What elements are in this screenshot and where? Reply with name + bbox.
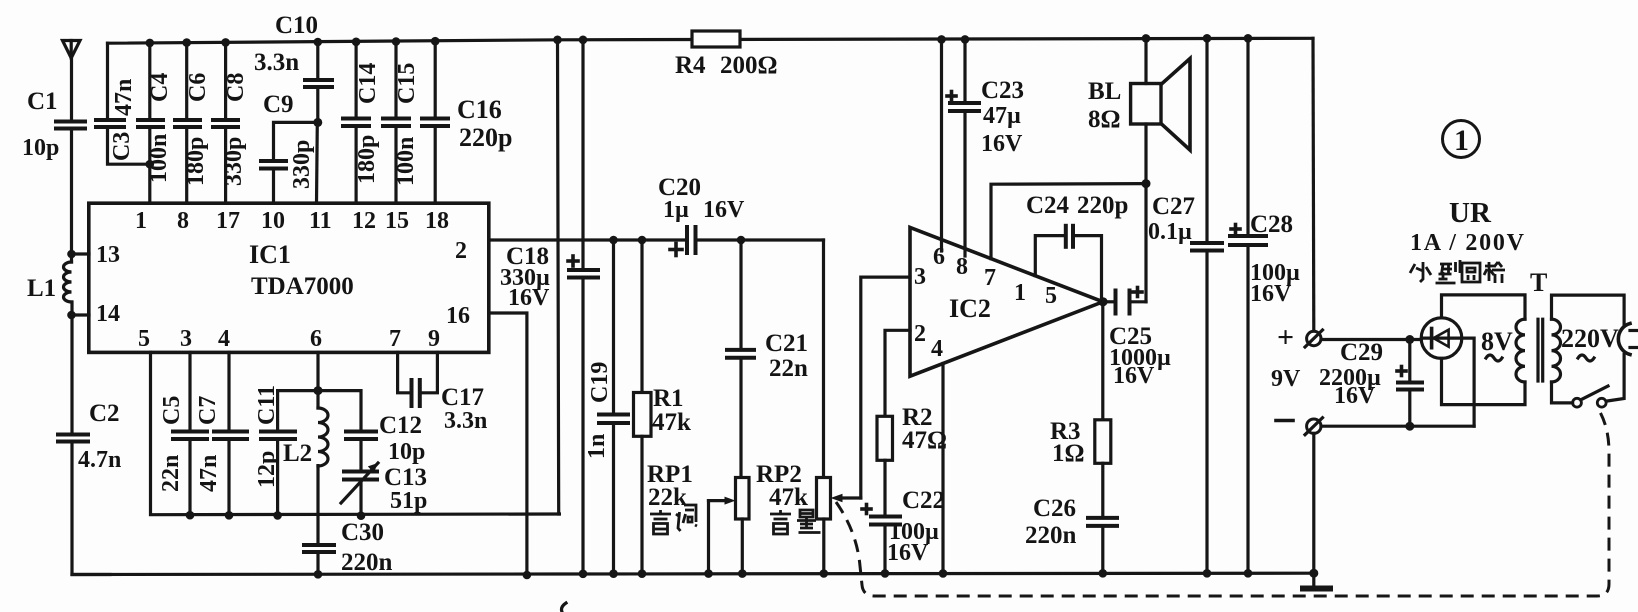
svg-text:5: 5 — [1045, 283, 1057, 309]
svg-text:C29: C29 — [1340, 339, 1383, 366]
svg-text:16V: 16V — [1113, 363, 1155, 389]
svg-text:220p: 220p — [1077, 192, 1128, 219]
svg-text:1: 1 — [1454, 124, 1469, 157]
svg-text:4: 4 — [931, 336, 943, 362]
svg-text:47Ω: 47Ω — [902, 427, 947, 454]
svg-text:220V: 220V — [1561, 324, 1619, 353]
svg-text:16V: 16V — [508, 285, 550, 311]
svg-text:C11: C11 — [254, 385, 280, 425]
svg-text:UR: UR — [1449, 197, 1492, 229]
svg-text:3: 3 — [180, 326, 192, 352]
svg-text:12p: 12p — [254, 451, 280, 488]
svg-text:47n: 47n — [111, 79, 137, 116]
svg-text:180p: 180p — [354, 135, 380, 184]
svg-text:C9: C9 — [263, 91, 294, 118]
svg-text:BL: BL — [1088, 78, 1121, 105]
svg-text:C8: C8 — [223, 73, 249, 102]
svg-text:4.7n: 4.7n — [78, 447, 121, 473]
svg-text:15: 15 — [385, 208, 409, 234]
svg-text:220n: 220n — [341, 549, 393, 576]
svg-text:R4: R4 — [675, 52, 706, 79]
svg-text:1Ω: 1Ω — [1052, 440, 1085, 467]
svg-text:18: 18 — [425, 208, 449, 234]
svg-text:3: 3 — [914, 264, 926, 290]
svg-text:14: 14 — [96, 301, 120, 327]
svg-text:IC2: IC2 — [949, 294, 991, 323]
svg-text:C21: C21 — [765, 330, 808, 357]
svg-text:16V: 16V — [887, 540, 929, 566]
svg-text:C5: C5 — [159, 396, 185, 425]
svg-text:C16: C16 — [457, 95, 502, 124]
svg-text:12: 12 — [352, 208, 376, 234]
svg-text:T: T — [1530, 268, 1547, 297]
svg-text:R1: R1 — [653, 385, 684, 412]
svg-text:220n: 220n — [1025, 522, 1077, 549]
svg-text:C22: C22 — [902, 487, 945, 514]
svg-text:16V: 16V — [1250, 281, 1292, 307]
svg-text:7: 7 — [984, 265, 996, 291]
svg-text:C7: C7 — [195, 396, 221, 425]
svg-text:C13: C13 — [384, 464, 427, 491]
svg-text:1: 1 — [1014, 280, 1026, 306]
svg-text:4: 4 — [218, 326, 230, 352]
svg-text:330p: 330p — [221, 137, 247, 186]
svg-text:47k: 47k — [769, 484, 808, 511]
svg-text:11: 11 — [309, 208, 332, 234]
svg-text:8Ω: 8Ω — [1088, 106, 1121, 133]
svg-text:47k: 47k — [652, 409, 691, 436]
svg-text:5: 5 — [138, 326, 150, 352]
svg-text:8: 8 — [177, 208, 189, 234]
svg-text:180p: 180p — [183, 137, 209, 186]
svg-text:C10: C10 — [275, 12, 318, 39]
svg-text:3.3n: 3.3n — [444, 408, 487, 434]
svg-text:9V: 9V — [1271, 366, 1301, 392]
svg-text:16: 16 — [446, 303, 470, 329]
svg-text:220p: 220p — [459, 123, 512, 152]
svg-text:16V: 16V — [703, 197, 745, 223]
svg-text:16V: 16V — [1334, 383, 1376, 409]
svg-text:C1: C1 — [27, 88, 58, 115]
svg-text:8: 8 — [956, 254, 968, 280]
svg-text:1n: 1n — [584, 434, 610, 459]
svg-text:10p: 10p — [388, 439, 425, 465]
svg-text:C30: C30 — [341, 519, 384, 546]
svg-text:IC1: IC1 — [249, 240, 291, 269]
svg-text:1µ: 1µ — [663, 197, 689, 223]
svg-text:C15: C15 — [394, 63, 420, 104]
svg-text:22n: 22n — [158, 455, 184, 492]
svg-text:1: 1 — [135, 208, 147, 234]
svg-text:C24: C24 — [1026, 192, 1070, 219]
svg-text:2: 2 — [455, 238, 467, 264]
svg-text:TDA7000: TDA7000 — [251, 273, 354, 300]
svg-text:9: 9 — [428, 326, 440, 352]
svg-text:C27: C27 — [1152, 193, 1195, 220]
svg-text:6: 6 — [933, 244, 945, 270]
svg-text:C19: C19 — [587, 362, 613, 403]
svg-text:51p: 51p — [390, 488, 427, 514]
svg-text:C23: C23 — [981, 77, 1024, 104]
svg-text:0.1µ: 0.1µ — [1148, 219, 1192, 245]
svg-text:100n: 100n — [393, 137, 419, 186]
svg-text:C26: C26 — [1033, 495, 1076, 522]
svg-text:13: 13 — [96, 242, 120, 268]
svg-text:100n: 100n — [146, 134, 172, 183]
svg-text:C17: C17 — [441, 384, 484, 411]
svg-text:+: + — [1277, 321, 1294, 354]
svg-text:22n: 22n — [769, 355, 808, 382]
svg-text:22k: 22k — [648, 484, 687, 511]
svg-text:2: 2 — [914, 321, 926, 347]
svg-text:C2: C2 — [89, 400, 120, 427]
svg-text:L2: L2 — [283, 440, 312, 467]
svg-text:7: 7 — [389, 326, 401, 352]
svg-text:C12: C12 — [379, 412, 422, 439]
svg-text:C6: C6 — [185, 73, 211, 102]
svg-text:8V: 8V — [1481, 327, 1513, 356]
svg-text:16V: 16V — [981, 131, 1023, 157]
svg-text:10: 10 — [261, 208, 285, 234]
svg-text:47n: 47n — [196, 455, 222, 492]
svg-text:C28: C28 — [1250, 211, 1293, 238]
svg-text:1A / 200V: 1A / 200V — [1410, 230, 1525, 256]
svg-text:10p: 10p — [22, 135, 59, 161]
svg-text:C3: C3 — [109, 132, 135, 161]
svg-text:6: 6 — [310, 326, 322, 352]
svg-text:17: 17 — [216, 208, 240, 234]
svg-text:47µ: 47µ — [983, 103, 1021, 129]
svg-text:3.3n: 3.3n — [254, 49, 299, 76]
svg-text:L1: L1 — [27, 275, 56, 302]
svg-text:330p: 330p — [289, 140, 315, 189]
svg-text:C14: C14 — [355, 63, 381, 104]
svg-text:200Ω: 200Ω — [720, 52, 778, 79]
svg-text:C4: C4 — [147, 73, 173, 102]
